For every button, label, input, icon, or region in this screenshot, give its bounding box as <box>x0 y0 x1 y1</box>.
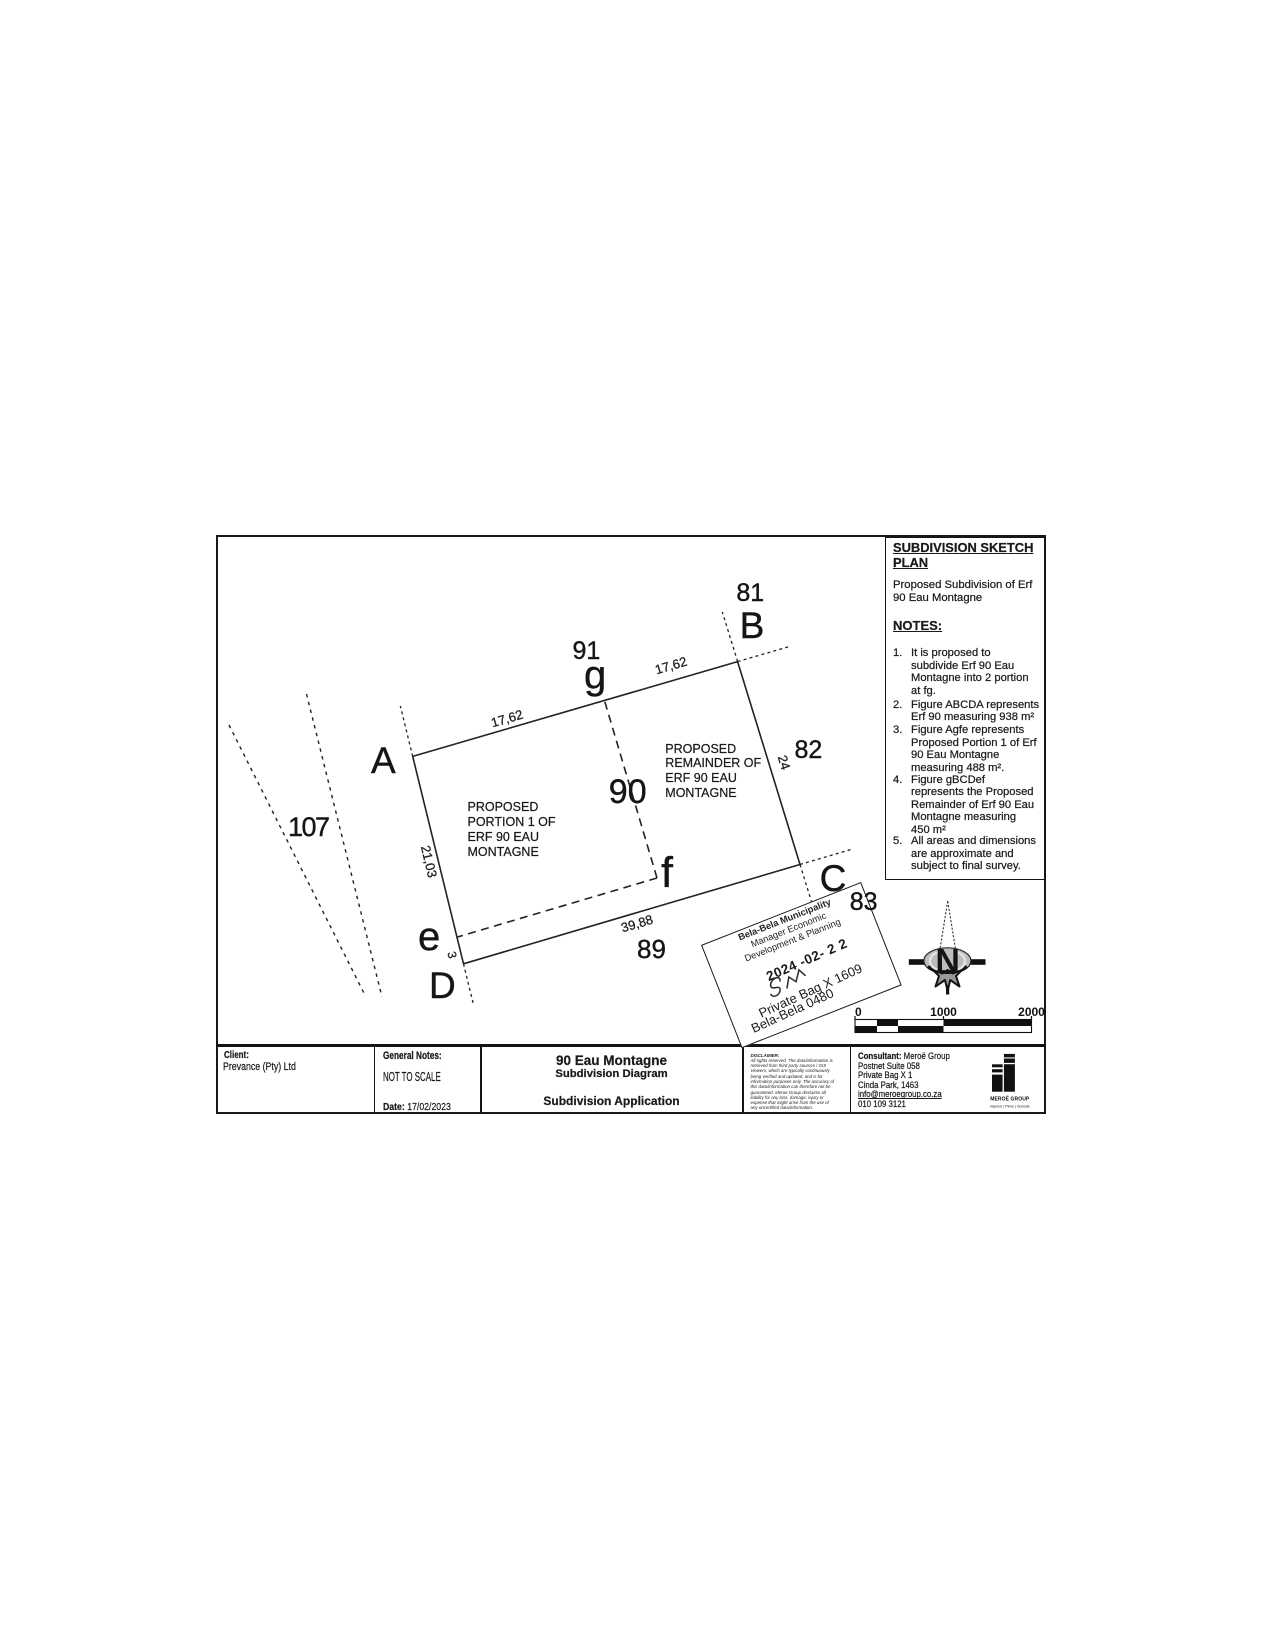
svg-text:MEROË GROUP: MEROË GROUP <box>990 1096 1030 1103</box>
svg-text:0: 0 <box>855 1005 862 1019</box>
svg-text:N: N <box>935 943 960 981</box>
svg-text:Inspired | Thrive | Innovate: Inspired | Thrive | Innovate <box>990 1105 1030 1109</box>
